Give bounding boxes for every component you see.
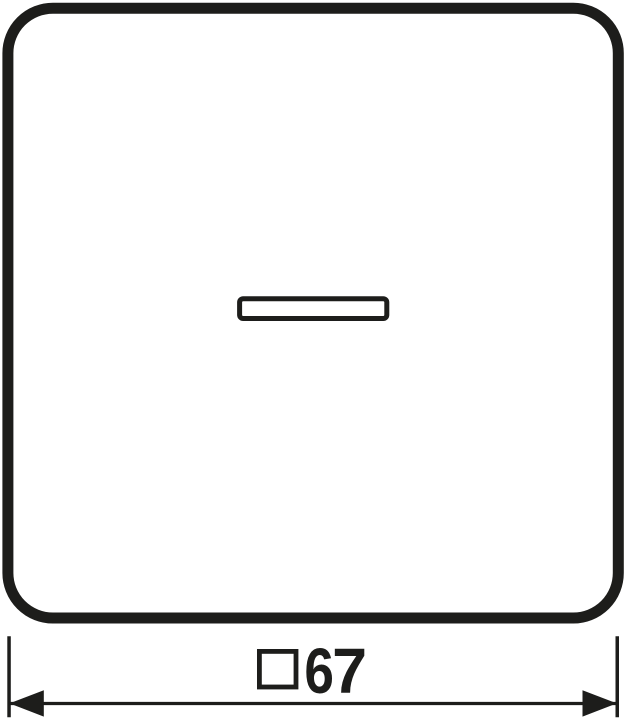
svg-text:6: 6 [304, 636, 334, 707]
svg-text:7: 7 [332, 636, 367, 707]
